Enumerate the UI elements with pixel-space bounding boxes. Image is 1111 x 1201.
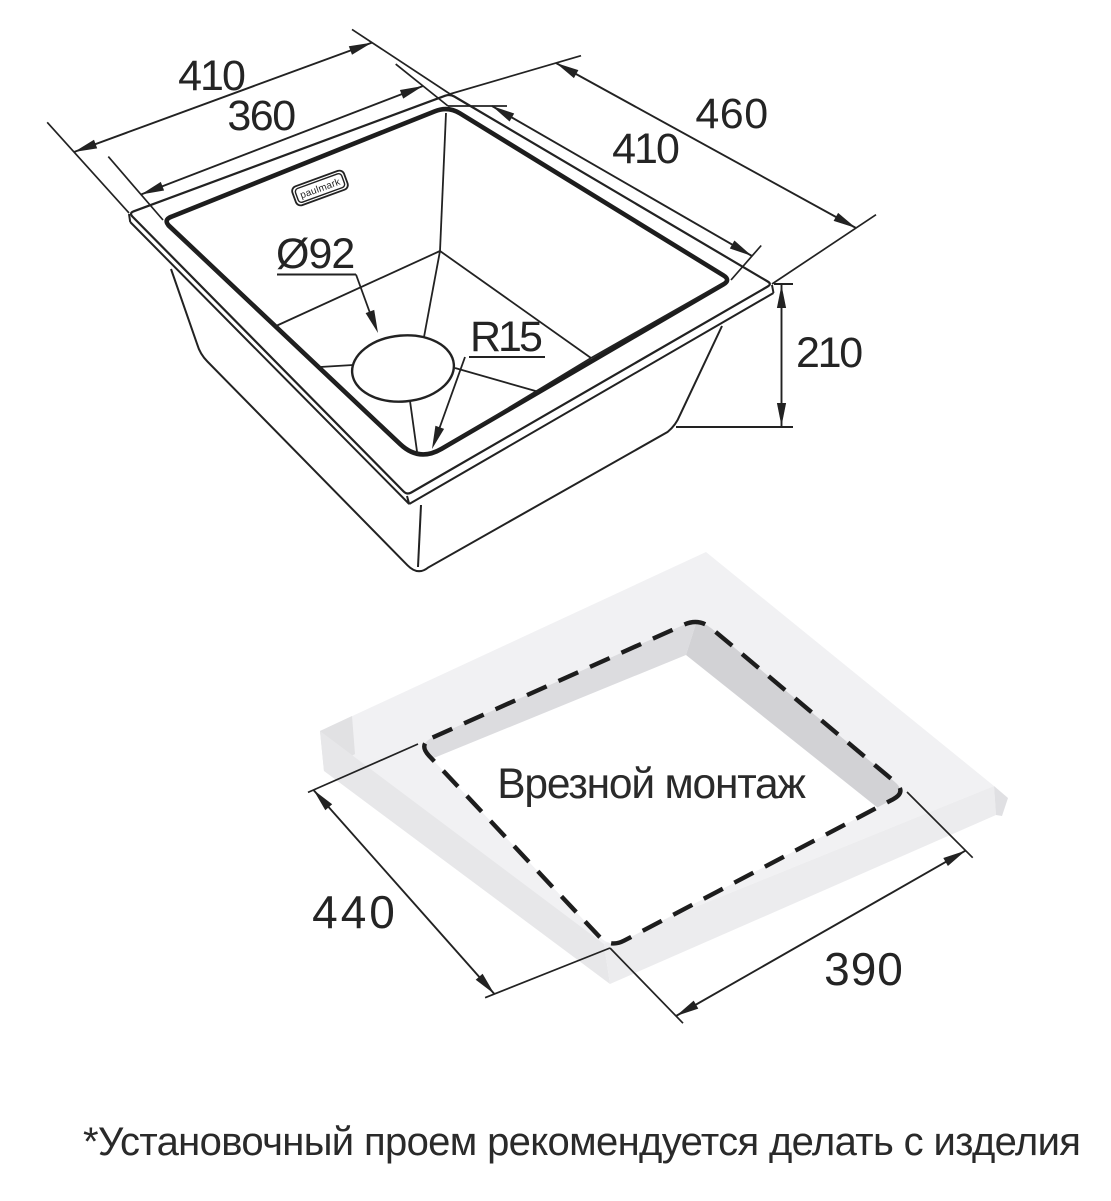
svg-text:R15: R15 — [470, 313, 542, 361]
svg-text:*Установочный проем рекомендуе: *Установочный проем рекомендуется делать… — [83, 1120, 1080, 1164]
svg-text:460: 460 — [695, 90, 768, 138]
svg-text:Ø92: Ø92 — [276, 230, 354, 278]
svg-text:360: 360 — [227, 92, 295, 140]
svg-text:410: 410 — [612, 125, 679, 173]
svg-text:390: 390 — [824, 943, 904, 995]
svg-text:210: 210 — [796, 329, 862, 377]
svg-text:440: 440 — [312, 886, 398, 938]
svg-text:Врезной монтаж: Врезной монтаж — [497, 761, 806, 808]
